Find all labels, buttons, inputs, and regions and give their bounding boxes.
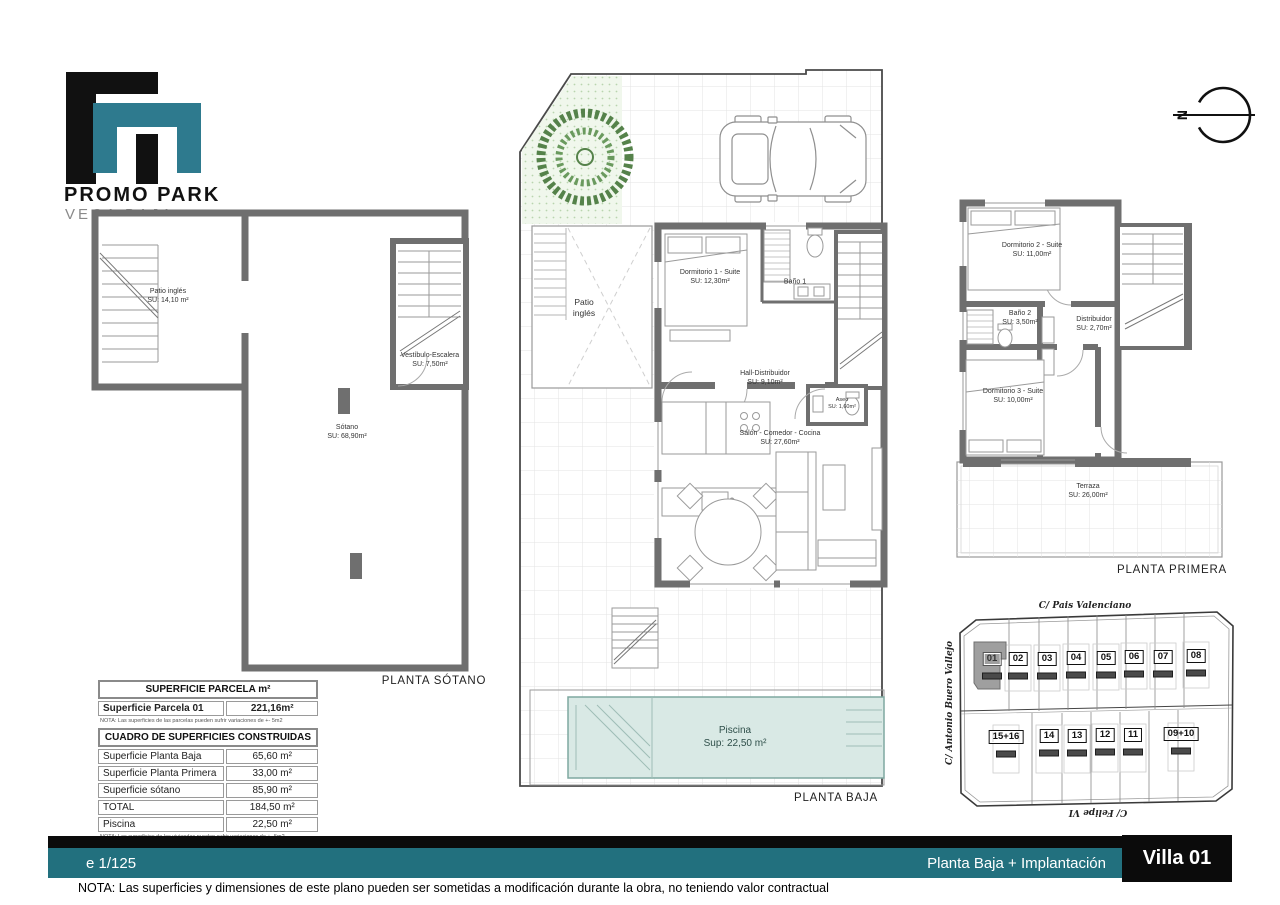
promo-park-logo: PROMO PARK VEGA BAJA bbox=[66, 72, 216, 222]
parcela-table-note: NOTA: Las superficies de las parcelas pu… bbox=[100, 718, 318, 724]
plot-area-chip bbox=[1008, 673, 1028, 680]
plot-area-chip bbox=[1067, 750, 1087, 757]
surface-tables: SUPERFICIE PARCELA m² Superficie Parcela… bbox=[98, 680, 318, 844]
plot-number: 03 bbox=[1038, 652, 1057, 666]
plot-number: 09+10 bbox=[1164, 727, 1199, 741]
room-label: Dormitorio 1 - Suite SU: 12,30m² bbox=[680, 268, 740, 286]
plot-area-chip bbox=[1186, 670, 1206, 677]
room-label: Hall-Distribuidor SU: 9,10m² bbox=[740, 369, 790, 387]
plot-number: 15+16 bbox=[989, 730, 1024, 744]
plot-area-chip bbox=[1066, 672, 1086, 679]
row-value: 85,90 m² bbox=[226, 783, 318, 798]
plot-area-chip bbox=[1124, 671, 1144, 678]
room-label: Sótano SU: 68,90m² bbox=[327, 423, 366, 441]
footer-black-bar bbox=[48, 836, 1232, 848]
site-boundary bbox=[960, 612, 1233, 806]
row-label: Superficie Planta Primera bbox=[98, 766, 224, 781]
plot-number: 13 bbox=[1068, 729, 1087, 743]
plot-number: 11 bbox=[1124, 728, 1142, 742]
pool-label: Piscina Sup: 22,50 m² bbox=[704, 724, 767, 750]
table-row: Superficie Planta Primera 33,00 m² bbox=[98, 766, 318, 781]
street-label-top: C/ Pais Valenciano bbox=[1039, 601, 1132, 611]
row-label: TOTAL bbox=[98, 800, 224, 815]
plan-title-sotano: PLANTA SÓTANO bbox=[382, 675, 487, 687]
bedroom3-furniture bbox=[966, 360, 1044, 455]
footer-title-bar: e 1/125 Planta Baja + Implantación bbox=[48, 848, 1122, 878]
room-label: Distribuidor SU: 2,70m² bbox=[1076, 315, 1111, 333]
row-label: Superficie Parcela 01 bbox=[98, 701, 224, 716]
exterior-stairs-icon bbox=[612, 608, 658, 668]
row-value: 22,50 m² bbox=[226, 817, 318, 832]
plan-title-primera: PLANTA PRIMERA bbox=[1117, 564, 1227, 576]
plot-number: 12 bbox=[1096, 728, 1115, 742]
car-icon bbox=[720, 116, 866, 202]
planta-sotano-drawing bbox=[88, 205, 488, 675]
plot-number: 02 bbox=[1009, 652, 1028, 666]
plot-area-chip bbox=[1153, 671, 1173, 678]
plot-number: 04 bbox=[1067, 651, 1086, 665]
table-row: Superficie sótano 85,90 m² bbox=[98, 783, 318, 798]
logo-black-bar-icon bbox=[66, 72, 96, 184]
plot-number: 07 bbox=[1154, 650, 1173, 664]
sheet-title: Planta Baja + Implantación bbox=[927, 855, 1106, 872]
row-label: Superficie sótano bbox=[98, 783, 224, 798]
plot-area-chip bbox=[1123, 749, 1143, 756]
row-value: 184,50 m² bbox=[226, 800, 318, 815]
table-row: Piscina 22,50 m² bbox=[98, 817, 318, 832]
room-label: Baño 1 bbox=[784, 277, 806, 286]
room-label: Vestíbulo-Escalera SU: 7,50m² bbox=[401, 351, 459, 369]
room-label: Patio inglés SU: 14,10 m² bbox=[147, 287, 188, 305]
plot-area-chip bbox=[1039, 750, 1059, 757]
plot-area-chip bbox=[1037, 673, 1057, 680]
table-row: Superficie Parcela 01 221,16m² bbox=[98, 701, 318, 716]
contract-note: NOTA: Las superficies y dimensiones de e… bbox=[78, 881, 829, 895]
room-label: Aseo SU: 1,60m² bbox=[828, 397, 856, 411]
row-label: Superficie Planta Baja bbox=[98, 749, 224, 764]
parcela-table-header: SUPERFICIE PARCELA m² bbox=[98, 680, 318, 699]
sotano-walls bbox=[95, 213, 466, 668]
north-letter: N bbox=[1174, 110, 1190, 120]
logo-black-inner-icon bbox=[136, 134, 158, 184]
room-label: Dormitorio 2 - Suite SU: 11,00m² bbox=[1002, 241, 1062, 259]
plot-area-chip bbox=[1095, 749, 1115, 756]
villa-number-box: Villa 01 bbox=[1122, 835, 1232, 882]
plot-number: 08 bbox=[1187, 649, 1206, 663]
plan-title-baja: PLANTA BAJA bbox=[794, 792, 878, 804]
street-label-left: C/ Antonio Buero Vallejo bbox=[945, 641, 955, 765]
north-arrow-icon: N bbox=[1165, 58, 1265, 153]
room-label: Patio inglés bbox=[564, 297, 604, 319]
plan-sheet: PROMO PARK VEGA BAJA N bbox=[0, 0, 1280, 905]
table-row: Superficie Planta Baja 65,60 m² bbox=[98, 749, 318, 764]
plot-number: 14 bbox=[1040, 729, 1059, 743]
logo-title: PROMO PARK bbox=[64, 184, 220, 207]
table-row-total: TOTAL 184,50 m² bbox=[98, 800, 318, 815]
plot-area-chip bbox=[996, 751, 1016, 758]
plot-area-chip bbox=[1171, 748, 1191, 755]
scale-label: e 1/125 bbox=[86, 855, 136, 872]
plot-number: 05 bbox=[1097, 651, 1116, 665]
plot-area-chip bbox=[982, 673, 1002, 680]
room-label: Terraza SU: 26,00m² bbox=[1068, 482, 1107, 500]
row-label: Piscina bbox=[98, 817, 224, 832]
villa-number: Villa 01 bbox=[1143, 847, 1212, 870]
room-label: Dormitorio 3 - Suite SU: 10,00m² bbox=[983, 387, 1043, 405]
plot-number: 01 bbox=[983, 652, 1002, 666]
row-value: 221,16m² bbox=[226, 701, 318, 716]
bedroom1-furniture bbox=[665, 234, 747, 341]
terraza-area bbox=[957, 462, 1222, 557]
row-value: 33,00 m² bbox=[226, 766, 318, 781]
planta-baja-drawing bbox=[510, 62, 905, 807]
room-label: Baño 2 SU: 3,50m² bbox=[1002, 309, 1037, 327]
row-value: 65,60 m² bbox=[226, 749, 318, 764]
street-label-bottom: C/ Felipe VI bbox=[1069, 807, 1127, 817]
room-label: Salón - Comedor - Cocina SU: 27,60m² bbox=[740, 429, 821, 447]
plot-number: 06 bbox=[1125, 650, 1144, 664]
plot-area-chip bbox=[1096, 672, 1116, 679]
garden-area bbox=[522, 76, 629, 224]
construidas-table-header: CUADRO DE SUPERFICIES CONSTRUIDAS bbox=[98, 728, 318, 747]
site-plan-drawing bbox=[930, 597, 1245, 832]
